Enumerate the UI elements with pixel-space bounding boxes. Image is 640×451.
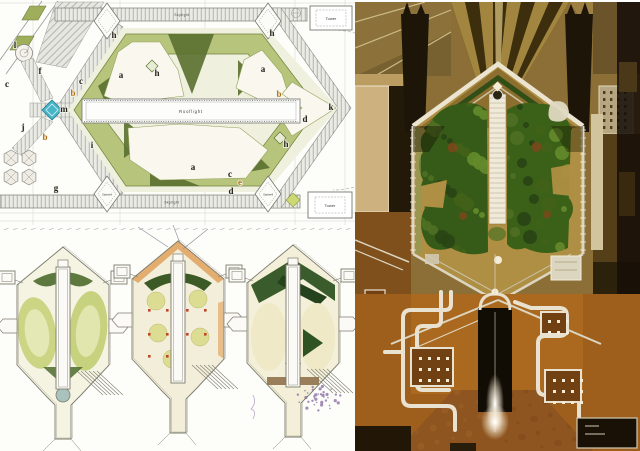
edge-label-top: Skylight <box>174 13 189 17</box>
paving-notch <box>551 164 573 196</box>
svg-text:j: j <box>21 122 25 132</box>
concept-sketch-3 <box>227 244 355 449</box>
svg-text:d: d <box>228 186 233 196</box>
svg-text:c: c <box>79 76 83 86</box>
hexagon-cluster <box>4 150 36 185</box>
svg-text:f: f <box>39 66 43 76</box>
tower-label-bottom: Tower <box>325 203 336 208</box>
rooflight-label: Rooflight <box>179 109 203 114</box>
svg-text:c: c <box>228 169 232 179</box>
svg-text:h: h <box>154 68 159 78</box>
svg-text:d: d <box>302 114 307 124</box>
svg-text:m: m <box>60 104 68 114</box>
diamond-bed <box>488 227 506 241</box>
planter-bed <box>22 6 46 20</box>
svg-text:h: h <box>111 30 116 40</box>
svg-text:k: k <box>328 102 333 112</box>
skylight-strip <box>489 82 506 224</box>
plan-drawing-panel: Skylight Skylight <box>0 0 355 225</box>
pavilion <box>551 256 581 280</box>
stairwell-label-right: Stairwell <box>263 193 273 197</box>
roof-sign-panel <box>577 418 637 448</box>
svg-text:e: e <box>238 177 242 187</box>
concept-sketch-1 <box>0 246 129 451</box>
pavilion <box>425 254 439 264</box>
svg-text:b: b <box>42 132 47 142</box>
plan-drawing: Skylight Skylight <box>0 0 355 225</box>
edge-label-bottom: Skylight <box>164 200 179 204</box>
svg-text:g: g <box>54 183 59 193</box>
svg-text:a: a <box>261 64 266 74</box>
stairwell-label-left: Stairwell <box>102 193 112 197</box>
svg-text:h: h <box>283 139 288 149</box>
aerial-photo-panel <box>355 2 640 451</box>
aerial-photo <box>355 2 640 451</box>
svg-text:h: h <box>269 28 274 38</box>
svg-text:a: a <box>119 70 124 80</box>
concept-sketch-2 <box>112 225 244 445</box>
svg-text:a: a <box>191 162 196 172</box>
rooflight-strip: Rooflight <box>82 99 300 123</box>
svg-text:c: c <box>5 79 9 89</box>
gallery-band-bottom <box>0 195 300 208</box>
concept-sketches <box>0 225 355 451</box>
concept-sketches-panel <box>0 225 355 451</box>
svg-text:b: b <box>70 88 75 98</box>
tower-label-top: Tower <box>326 16 337 21</box>
svg-text:b: b <box>276 89 281 99</box>
roof-garden-figure: Skylight Skylight <box>0 0 640 451</box>
